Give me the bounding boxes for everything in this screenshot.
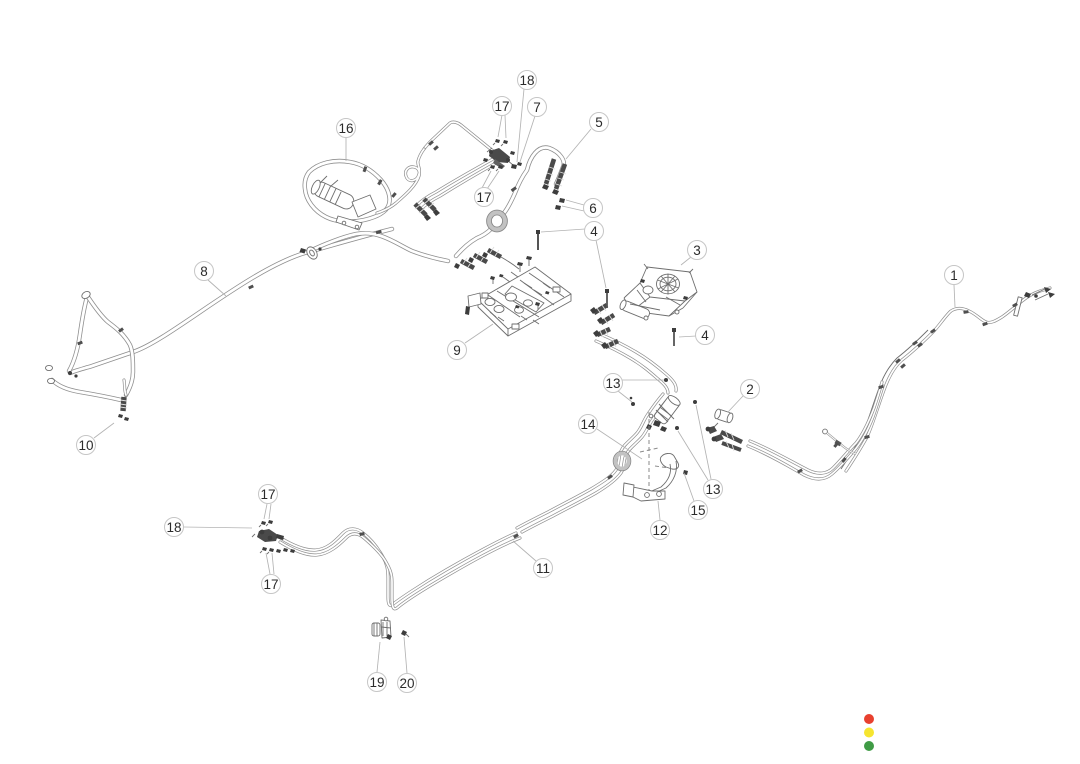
svg-text:13: 13 bbox=[605, 376, 620, 391]
svg-text:11: 11 bbox=[536, 561, 550, 576]
svg-text:6: 6 bbox=[589, 201, 597, 216]
svg-text:17: 17 bbox=[476, 190, 491, 205]
svg-text:18: 18 bbox=[166, 520, 181, 535]
svg-text:14: 14 bbox=[580, 417, 596, 432]
svg-text:8: 8 bbox=[200, 264, 208, 279]
svg-text:3: 3 bbox=[693, 243, 701, 258]
svg-text:12: 12 bbox=[652, 523, 667, 538]
svg-text:7: 7 bbox=[533, 100, 541, 115]
svg-text:2: 2 bbox=[746, 382, 754, 397]
svg-text:5: 5 bbox=[595, 115, 603, 130]
svg-text:4: 4 bbox=[701, 328, 709, 343]
svg-text:17: 17 bbox=[260, 487, 275, 502]
svg-text:4: 4 bbox=[590, 224, 598, 239]
svg-text:15: 15 bbox=[690, 503, 705, 518]
svg-text:13: 13 bbox=[705, 482, 720, 497]
svg-text:18: 18 bbox=[519, 73, 534, 88]
svg-text:10: 10 bbox=[78, 438, 93, 453]
svg-text:20: 20 bbox=[399, 676, 414, 691]
svg-text:19: 19 bbox=[369, 675, 384, 690]
svg-text:16: 16 bbox=[338, 121, 353, 136]
svg-text:17: 17 bbox=[263, 577, 278, 592]
svg-text:17: 17 bbox=[494, 99, 509, 114]
svg-text:1: 1 bbox=[950, 268, 958, 283]
svg-text:9: 9 bbox=[453, 343, 461, 358]
